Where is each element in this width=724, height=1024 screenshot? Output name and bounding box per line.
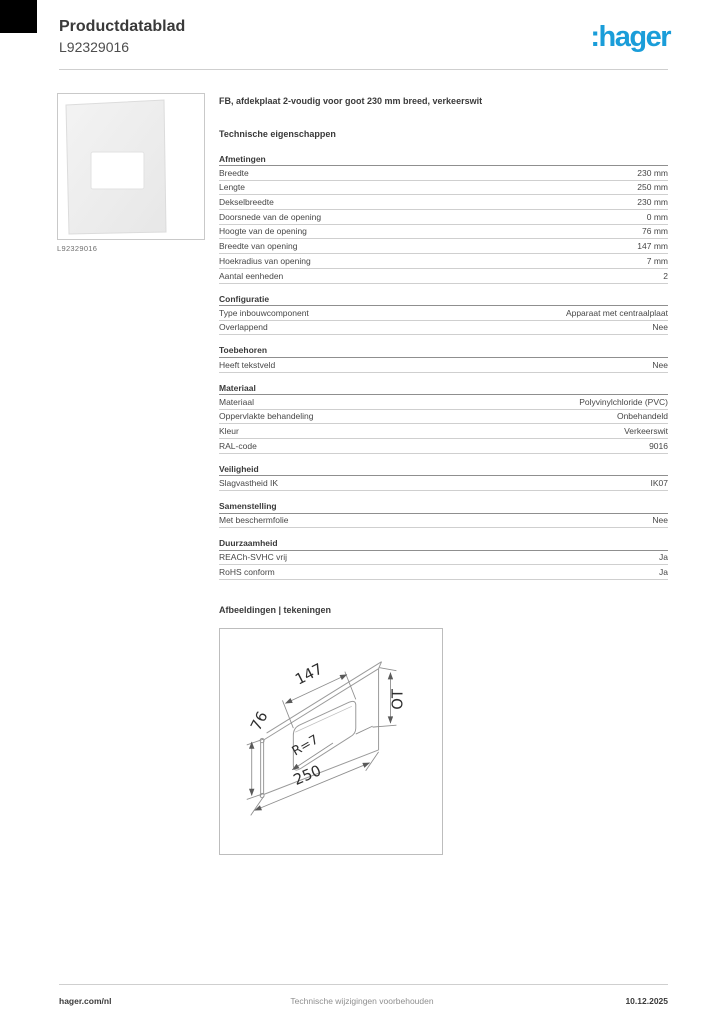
product-reference: L92329016 <box>59 39 129 55</box>
spec-label: Aantal eenheden <box>219 271 283 281</box>
tech-properties-heading: Technische eigenschappen <box>219 129 668 139</box>
dim-opening-width: 147 <box>292 660 325 689</box>
spec-value: 147 mm <box>637 241 668 251</box>
spec-row: Hoekradius van opening7 mm <box>219 254 668 269</box>
spec-row: Breedte van opening147 mm <box>219 239 668 254</box>
spec-row: Breedte230 mm <box>219 166 668 181</box>
product-title: FB, afdekplaat 2-voudig voor goot 230 mm… <box>219 96 668 106</box>
product-image <box>57 93 205 240</box>
dim-side-ot: OT <box>388 688 406 710</box>
spec-value: 76 mm <box>642 226 668 236</box>
dim-opening-height: 76 <box>247 708 272 733</box>
spec-row: Aantal eenheden2 <box>219 269 668 284</box>
spec-row: Type inbouwcomponentApparaat met centraa… <box>219 306 668 321</box>
footer-date: 10.12.2025 <box>625 996 668 1006</box>
spec-label: Kleur <box>219 426 239 436</box>
spec-value: 230 mm <box>637 168 668 178</box>
spec-section: DuurzaamheidREACh-SVHC vrijJaRoHS confor… <box>219 537 668 580</box>
spec-value: 7 mm <box>647 256 668 266</box>
spec-value: Nee <box>652 515 668 525</box>
dim-corner-radius: R=7 <box>290 732 322 759</box>
hager-logo: :hager <box>590 21 670 54</box>
spec-label: Slagvastheid IK <box>219 478 278 488</box>
spec-label: Hoogte van de opening <box>219 226 307 236</box>
spec-label: REACh-SVHC vrij <box>219 552 287 562</box>
spec-section-title: Configuratie <box>219 292 668 306</box>
spec-sections: AfmetingenBreedte230 mmLengte250 mmDekse… <box>219 152 668 580</box>
spec-label: Lengte <box>219 182 245 192</box>
spec-label: Dekselbreedte <box>219 197 274 207</box>
spec-label: Hoekradius van opening <box>219 256 311 266</box>
spec-section-title: Duurzaamheid <box>219 537 668 551</box>
dim-length: 250 <box>291 761 324 789</box>
spec-value: 2 <box>663 271 668 281</box>
dimension-drawing: 147 76 R=7 250 OT <box>220 629 442 854</box>
spec-label: Doorsnede van de opening <box>219 212 321 222</box>
spec-section: ToebehorenHeeft tekstveldNee <box>219 344 668 373</box>
spec-label: Oppervlakte behandeling <box>219 411 314 421</box>
spec-label: RAL-code <box>219 441 257 451</box>
spec-value: IK07 <box>651 478 669 488</box>
spec-section-title: Veiligheid <box>219 462 668 476</box>
spec-value: 230 mm <box>637 197 668 207</box>
spec-row: OverlappendNee <box>219 321 668 336</box>
header-divider <box>59 69 668 70</box>
spec-label: RoHS conform <box>219 567 275 577</box>
footer-divider <box>59 984 668 985</box>
page-corner-mark <box>0 0 37 33</box>
spec-row: Hoogte van de opening76 mm <box>219 225 668 240</box>
main-content: FB, afdekplaat 2-voudig voor goot 230 mm… <box>219 93 668 855</box>
spec-section: VeiligheidSlagvastheid IKIK07 <box>219 462 668 491</box>
datasheet-page: Productdatablad L92329016 :hager L923290… <box>0 0 724 1024</box>
spec-section-title: Toebehoren <box>219 344 668 358</box>
spec-value: Nee <box>652 360 668 370</box>
spec-section-title: Materiaal <box>219 381 668 395</box>
spec-value: 250 mm <box>637 182 668 192</box>
spec-row: MateriaalPolyvinylchloride (PVC) <box>219 395 668 410</box>
product-image-caption: L92329016 <box>57 244 97 253</box>
spec-value: Apparaat met centraalplaat <box>566 308 668 318</box>
product-photo-plate <box>58 94 204 239</box>
spec-section: ConfiguratieType inbouwcomponentApparaat… <box>219 292 668 335</box>
spec-value: Nee <box>652 322 668 332</box>
spec-row: RAL-code9016 <box>219 439 668 454</box>
spec-value: Ja <box>659 567 668 577</box>
spec-value: 9016 <box>649 441 668 451</box>
spec-section: AfmetingenBreedte230 mmLengte250 mmDekse… <box>219 152 668 284</box>
spec-label: Overlappend <box>219 322 268 332</box>
spec-label: Materiaal <box>219 397 254 407</box>
spec-section: SamenstellingMet beschermfolieNee <box>219 500 668 529</box>
spec-row: KleurVerkeerswit <box>219 424 668 439</box>
spec-label: Breedte van opening <box>219 241 297 251</box>
spec-row: Slagvastheid IKIK07 <box>219 476 668 491</box>
spec-row: Dekselbreedte230 mm <box>219 195 668 210</box>
drawings-heading: Afbeeldingen | tekeningen <box>219 605 668 615</box>
spec-label: Type inbouwcomponent <box>219 308 309 318</box>
spec-value: Onbehandeld <box>617 411 668 421</box>
spec-label: Heeft tekstveld <box>219 360 275 370</box>
spec-row: Heeft tekstveldNee <box>219 358 668 373</box>
spec-row: Met beschermfolieNee <box>219 514 668 529</box>
spec-value: 0 mm <box>647 212 668 222</box>
spec-row: REACh-SVHC vrijJa <box>219 551 668 566</box>
spec-section-title: Samenstelling <box>219 500 668 514</box>
footer-disclaimer: Technische wijzigingen voorbehouden <box>0 996 724 1006</box>
spec-value: Polyvinylchloride (PVC) <box>579 397 668 407</box>
spec-row: Lengte250 mm <box>219 181 668 196</box>
spec-label: Breedte <box>219 168 249 178</box>
spec-row: Doorsnede van de opening0 mm <box>219 210 668 225</box>
spec-value: Verkeerswit <box>624 426 668 436</box>
spec-section: MateriaalMateriaalPolyvinylchloride (PVC… <box>219 381 668 454</box>
page-title: Productdatablad <box>59 18 185 36</box>
technical-drawing: 147 76 R=7 250 OT <box>219 628 443 855</box>
spec-row: Oppervlakte behandelingOnbehandeld <box>219 410 668 425</box>
spec-section-title: Afmetingen <box>219 152 668 166</box>
spec-label: Met beschermfolie <box>219 515 288 525</box>
spec-row: RoHS conformJa <box>219 565 668 580</box>
spec-value: Ja <box>659 552 668 562</box>
